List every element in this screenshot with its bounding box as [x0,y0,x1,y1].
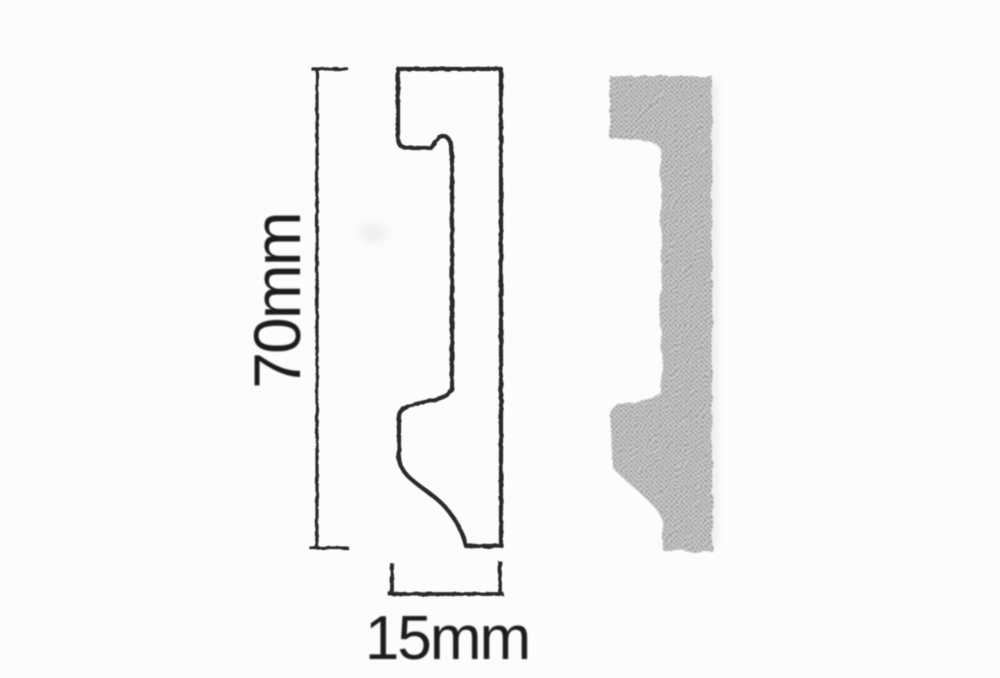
profile-diagram-svg: 70mm 15mm [0,0,1000,678]
width-dimension-label: 15mm [365,604,529,673]
scan-smudge [358,223,388,243]
profile-dimension-diagram: 70mm 15mm [0,0,1000,678]
height-dimension-label: 70mm [240,213,314,388]
